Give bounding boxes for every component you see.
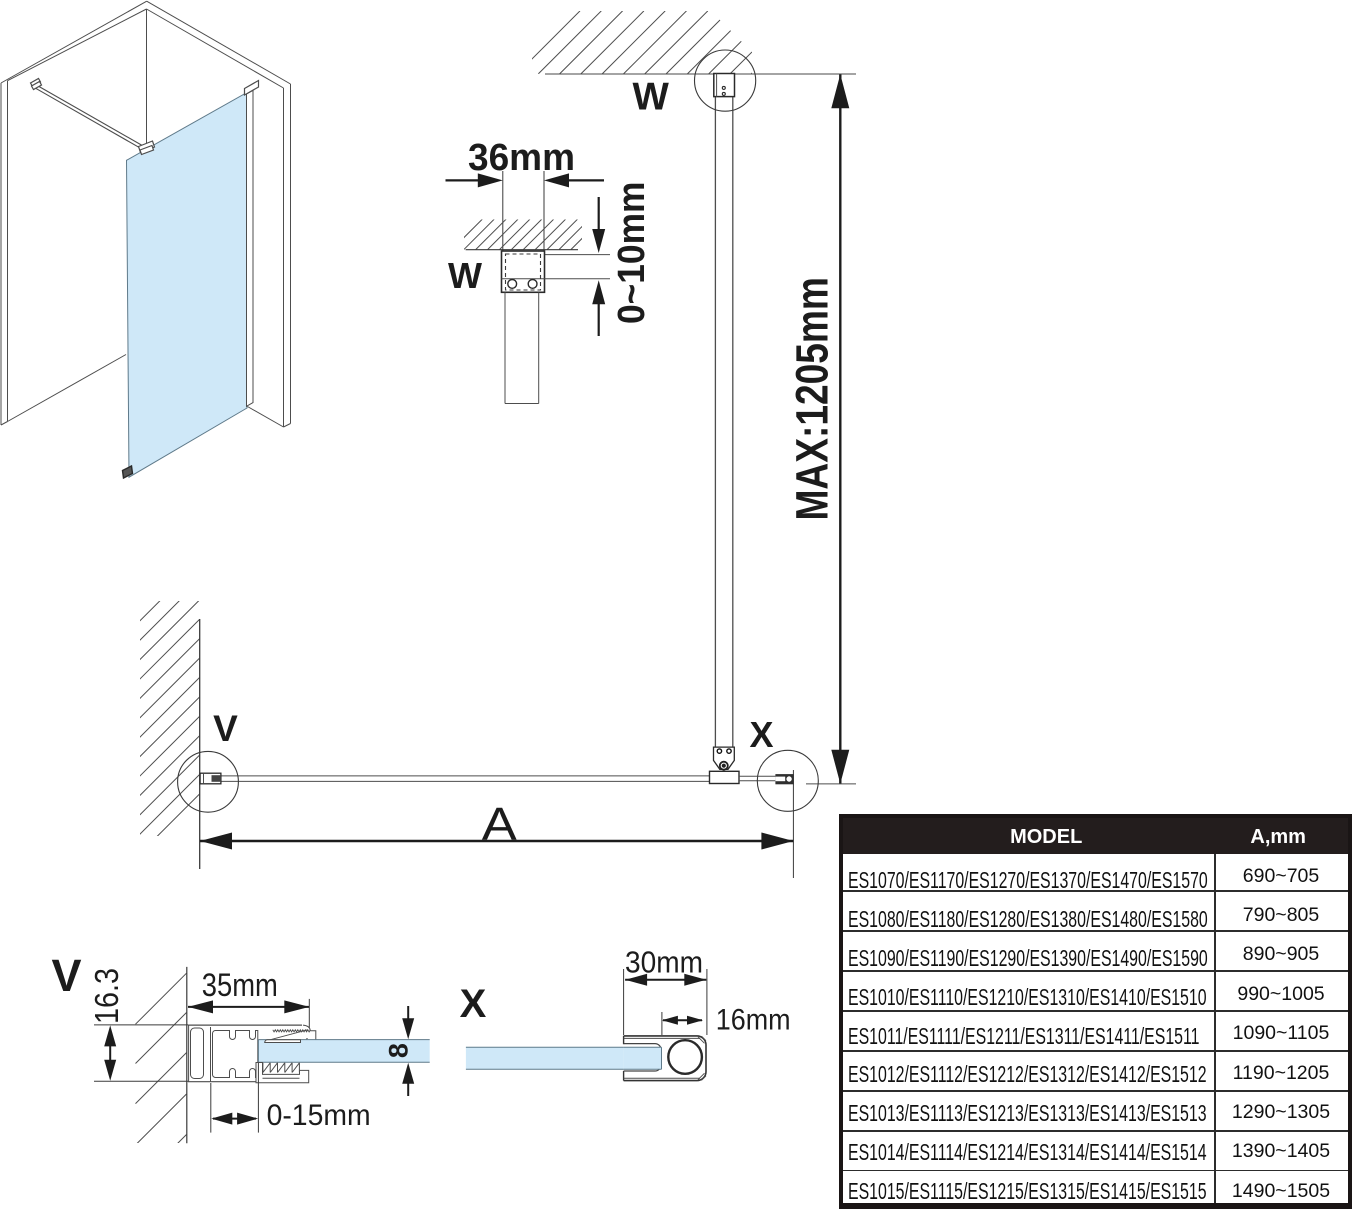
svg-text:A: A xyxy=(482,798,517,850)
svg-text:35mm: 35mm xyxy=(202,967,278,1003)
svg-text:8: 8 xyxy=(384,1043,414,1058)
svg-text:36mm: 36mm xyxy=(468,137,575,179)
svg-text:16mm: 16mm xyxy=(716,1004,791,1037)
svg-text:X: X xyxy=(460,982,487,1026)
svg-text:MAX:1205mm: MAX:1205mm xyxy=(787,277,838,521)
svg-text:V: V xyxy=(213,708,238,749)
svg-text:W: W xyxy=(633,76,670,119)
svg-text:W: W xyxy=(448,255,482,296)
svg-text:X: X xyxy=(749,714,773,755)
svg-text:16.3: 16.3 xyxy=(88,968,125,1024)
svg-text:0-15mm: 0-15mm xyxy=(267,1099,371,1132)
svg-text:0~10mm: 0~10mm xyxy=(611,182,653,324)
svg-text:30mm: 30mm xyxy=(625,945,703,980)
svg-text:V: V xyxy=(51,950,81,1001)
